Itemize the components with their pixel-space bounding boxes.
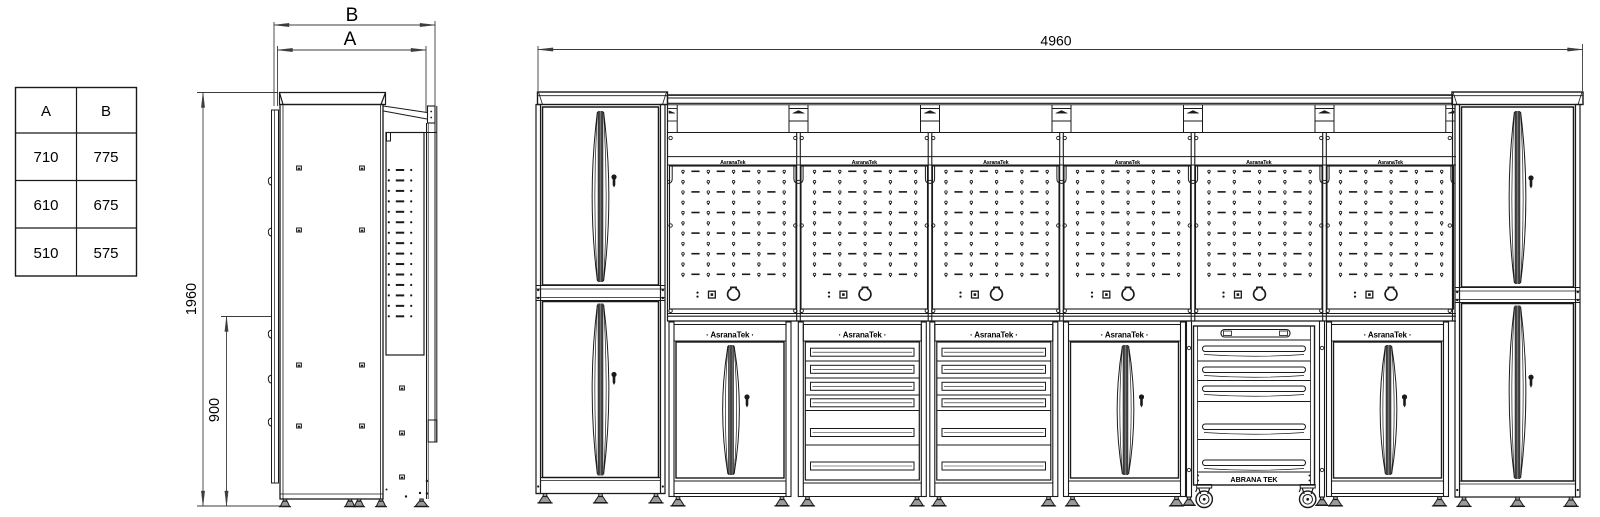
svg-text:775: 775 (93, 149, 118, 166)
svg-text:1960: 1960 (184, 283, 200, 315)
svg-text:AsranaTek: AsranaTek (1115, 160, 1141, 166)
svg-text:710: 710 (33, 149, 58, 166)
svg-text:675: 675 (93, 197, 118, 214)
svg-text:575: 575 (93, 245, 118, 262)
svg-text:B: B (101, 103, 111, 120)
svg-text:4960: 4960 (1040, 33, 1071, 49)
svg-text:· AsranaTek ·: · AsranaTek · (838, 331, 886, 340)
svg-text:510: 510 (33, 245, 58, 262)
svg-text:AsranaTek: AsranaTek (983, 160, 1009, 166)
svg-text:A: A (41, 103, 51, 120)
svg-text:A: A (344, 29, 357, 50)
svg-text:· AsranaTek ·: · AsranaTek · (1101, 331, 1149, 340)
svg-text:ABRANA TEK: ABRANA TEK (1230, 475, 1278, 484)
svg-text:· AsranaTek ·: · AsranaTek · (1364, 331, 1412, 340)
svg-text:AsranaTek: AsranaTek (1246, 160, 1272, 166)
svg-text:AsranaTek: AsranaTek (720, 160, 746, 166)
svg-text:AsranaTek: AsranaTek (852, 160, 878, 166)
svg-text:610: 610 (33, 197, 58, 214)
svg-text:AsranaTek: AsranaTek (1378, 160, 1404, 166)
svg-text:900: 900 (207, 398, 223, 422)
svg-text:· AsranaTek ·: · AsranaTek · (970, 331, 1018, 340)
svg-text:B: B (346, 5, 359, 26)
svg-text:· AsranaTek ·: · AsranaTek · (706, 331, 754, 340)
